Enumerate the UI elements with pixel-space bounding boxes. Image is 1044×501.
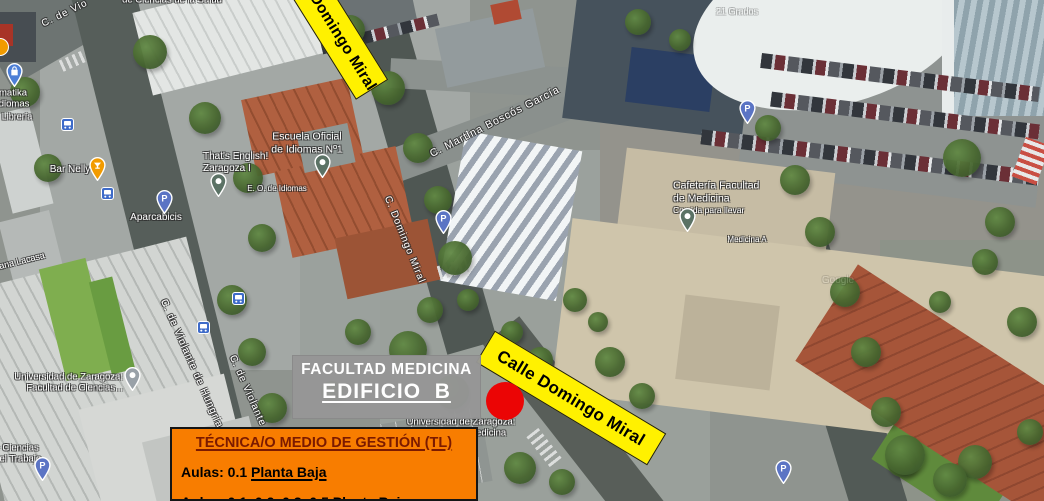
parking-pin-3-icon: P xyxy=(739,100,756,129)
parking-pin-5-icon: P xyxy=(775,460,792,489)
bus-stop-icon xyxy=(61,118,74,136)
cafeteria-pin-icon xyxy=(679,208,696,237)
building-label-edificio: EDIFICIO B xyxy=(293,380,480,404)
svg-text:P: P xyxy=(744,104,750,114)
school-pin-thats-english-icon xyxy=(210,173,227,202)
school-pin-escuela-idiomas-icon xyxy=(314,154,331,183)
svg-text:P: P xyxy=(161,194,167,204)
exam-info-aulas-line: Aulas: 0.1 Planta Baja xyxy=(181,464,327,480)
aulas-prefix: Aulas: 0.1 xyxy=(181,464,251,480)
map-pins-layer: PPPPP xyxy=(0,0,1044,501)
shopping-pin-icon xyxy=(6,63,23,92)
location-marker-red-dot xyxy=(486,382,524,420)
bus-stop-icon xyxy=(101,187,114,205)
building-label-box: FACULTAD MEDICINA EDIFICIO B xyxy=(293,356,480,418)
map-screenshot: C. de Viode Ciencias de la SaludC. Marti… xyxy=(0,0,1044,501)
bus-stop-icon xyxy=(232,292,245,310)
aulas-planta-baja: Planta Baja xyxy=(251,464,326,480)
university-pin-icon xyxy=(124,367,141,396)
parking-pin-4-icon: P xyxy=(34,457,51,486)
svg-text:P: P xyxy=(39,461,45,471)
exam-info-title: TÉCNICA/O MEDIO DE GESTIÓN (TL) xyxy=(172,435,476,451)
exam-info-clipped-line: Aulas: 0.1, 0.2, 0.3, 0.5 Planta Baja xyxy=(181,494,408,501)
bar-pin-icon xyxy=(89,157,106,186)
parking-pin-2-icon: P xyxy=(435,210,452,239)
svg-text:P: P xyxy=(440,214,446,224)
building-label-title: FACULTAD MEDICINA xyxy=(293,361,480,379)
exam-info-box: TÉCNICA/O MEDIO DE GESTIÓN (TL) Aulas: 0… xyxy=(170,427,478,501)
restaurant-poi-icon xyxy=(0,38,9,56)
bus-stop-icon xyxy=(197,321,210,339)
parking-pin-1-icon: P xyxy=(156,190,173,219)
svg-text:P: P xyxy=(780,464,786,474)
